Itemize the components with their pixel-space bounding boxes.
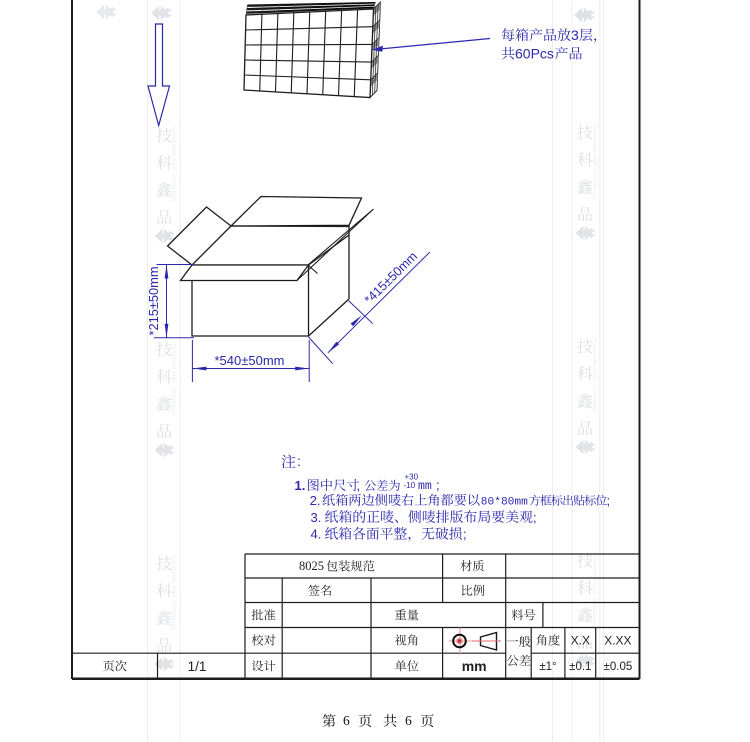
svg-text:6: 6 — [343, 713, 350, 728]
svg-text::: : — [297, 453, 301, 469]
svg-text:Pacesetter M&E Technology: Pacesetter M&E Technology — [170, 555, 176, 630]
svg-text:X.X: X.X — [571, 634, 590, 648]
svg-text:;: ; — [533, 510, 537, 525]
svg-text:*540±50mm: *540±50mm — [215, 353, 285, 368]
svg-text:*415±50mm: *415±50mm — [361, 249, 420, 307]
svg-text:±0.05: ±0.05 — [604, 661, 633, 673]
svg-text:Pacesetter M&E Technology: Pacesetter M&E Technology — [170, 341, 176, 416]
svg-text:;: ; — [436, 478, 440, 493]
svg-text:1/1: 1/1 — [188, 659, 207, 674]
svg-text:X.XX: X.XX — [604, 634, 631, 648]
svg-text:±1°: ±1° — [539, 661, 556, 673]
svg-text:Pacesetter M&E Technology: Pacesetter M&E Technology — [591, 552, 597, 627]
svg-text:-10: -10 — [404, 481, 416, 490]
svg-text:*215±50mm: *215±50mm — [146, 267, 161, 336]
svg-text:,: , — [357, 478, 361, 493]
svg-text:4.: 4. — [311, 527, 322, 542]
svg-text:3: 3 — [571, 27, 579, 43]
svg-text:;: ; — [607, 493, 611, 508]
svg-text:;: ; — [463, 527, 467, 542]
svg-text:3.: 3. — [311, 510, 322, 525]
svg-text:6: 6 — [405, 713, 412, 728]
svg-text:1.: 1. — [295, 478, 306, 493]
svg-text:mm: mm — [418, 480, 432, 493]
svg-text:60Pcs: 60Pcs — [515, 46, 554, 62]
svg-text:mm: mm — [462, 658, 487, 674]
svg-text:8025: 8025 — [299, 559, 324, 573]
svg-text:Pacesetter M&E Technology: Pacesetter M&E Technology — [591, 124, 597, 199]
svg-text:±0.1: ±0.1 — [569, 661, 591, 673]
svg-text:Pacesetter M&E Technology: Pacesetter M&E Technology — [170, 127, 176, 202]
svg-text:80*80mm: 80*80mm — [481, 496, 528, 508]
svg-text:Pacesetter M&E Technology: Pacesetter M&E Technology — [591, 338, 597, 413]
svg-text:2.: 2. — [310, 493, 321, 508]
